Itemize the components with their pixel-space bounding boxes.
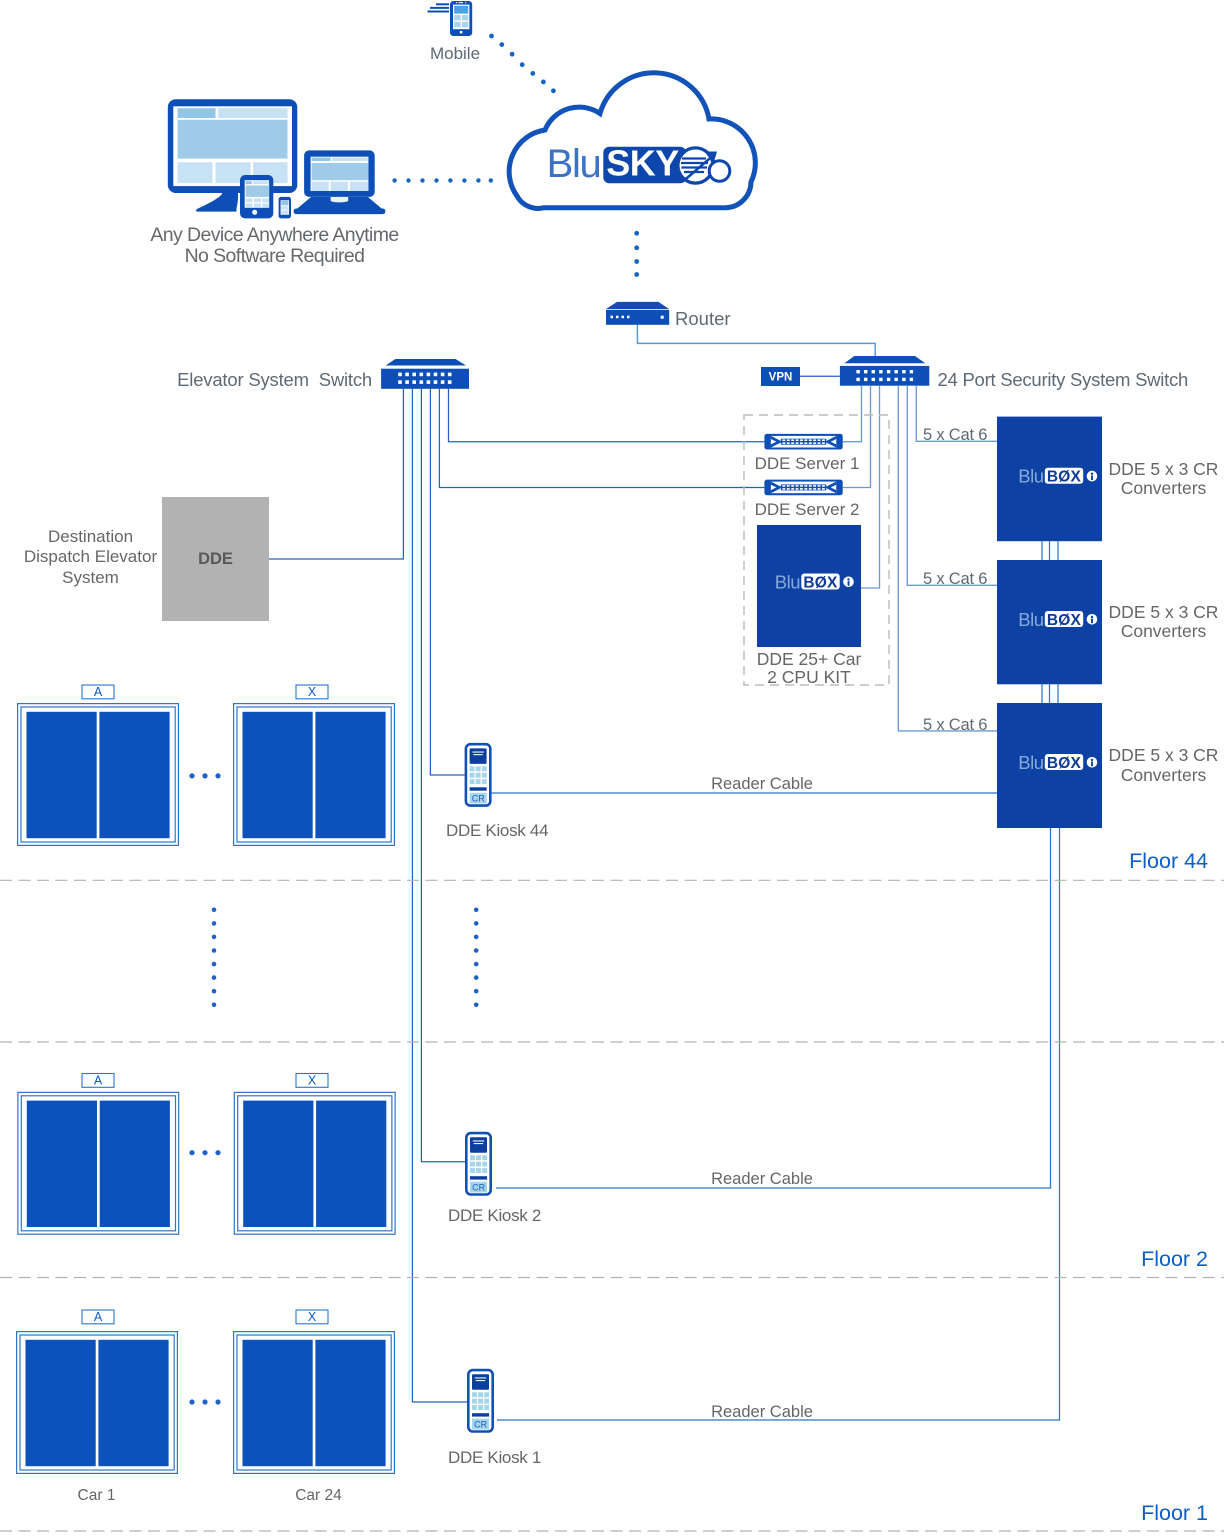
svg-text:A: A — [94, 1074, 103, 1088]
svg-text:VPN: VPN — [769, 372, 793, 384]
svg-text:SKY: SKY — [606, 143, 679, 184]
svg-text:Blu: Blu — [547, 142, 601, 186]
svg-text:X: X — [308, 1310, 317, 1324]
svg-text:X: X — [308, 685, 317, 699]
svg-text:X: X — [308, 1074, 317, 1088]
svg-text:A: A — [94, 1310, 103, 1324]
svg-text:A: A — [94, 685, 103, 699]
